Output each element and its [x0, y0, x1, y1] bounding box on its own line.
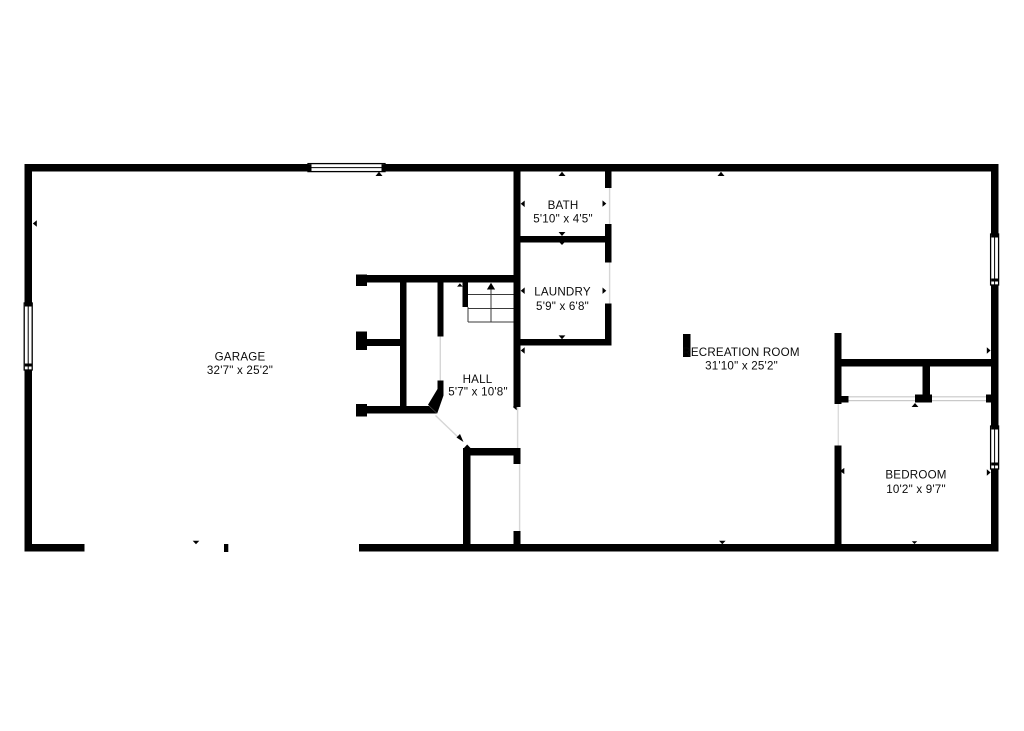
svg-text:BATH: BATH: [548, 199, 579, 212]
svg-text:BEDROOM: BEDROOM: [885, 468, 946, 481]
svg-text:10'2" x 9'7": 10'2" x 9'7": [886, 483, 946, 496]
svg-text:RECREATION ROOM: RECREATION ROOM: [682, 346, 799, 359]
svg-text:31'10" x 25'2": 31'10" x 25'2": [705, 359, 778, 372]
svg-text:5'9" x 6'8": 5'9" x 6'8": [536, 300, 589, 313]
svg-text:5'7" x 10'8": 5'7" x 10'8": [448, 386, 508, 399]
svg-text:GARAGE: GARAGE: [215, 350, 266, 363]
svg-text:HALL: HALL: [463, 373, 493, 386]
svg-text:LAUNDRY: LAUNDRY: [534, 286, 591, 299]
svg-text:32'7" x 25'2": 32'7" x 25'2": [207, 364, 273, 377]
svg-text:5'10" x 4'5": 5'10" x 4'5": [533, 213, 593, 226]
